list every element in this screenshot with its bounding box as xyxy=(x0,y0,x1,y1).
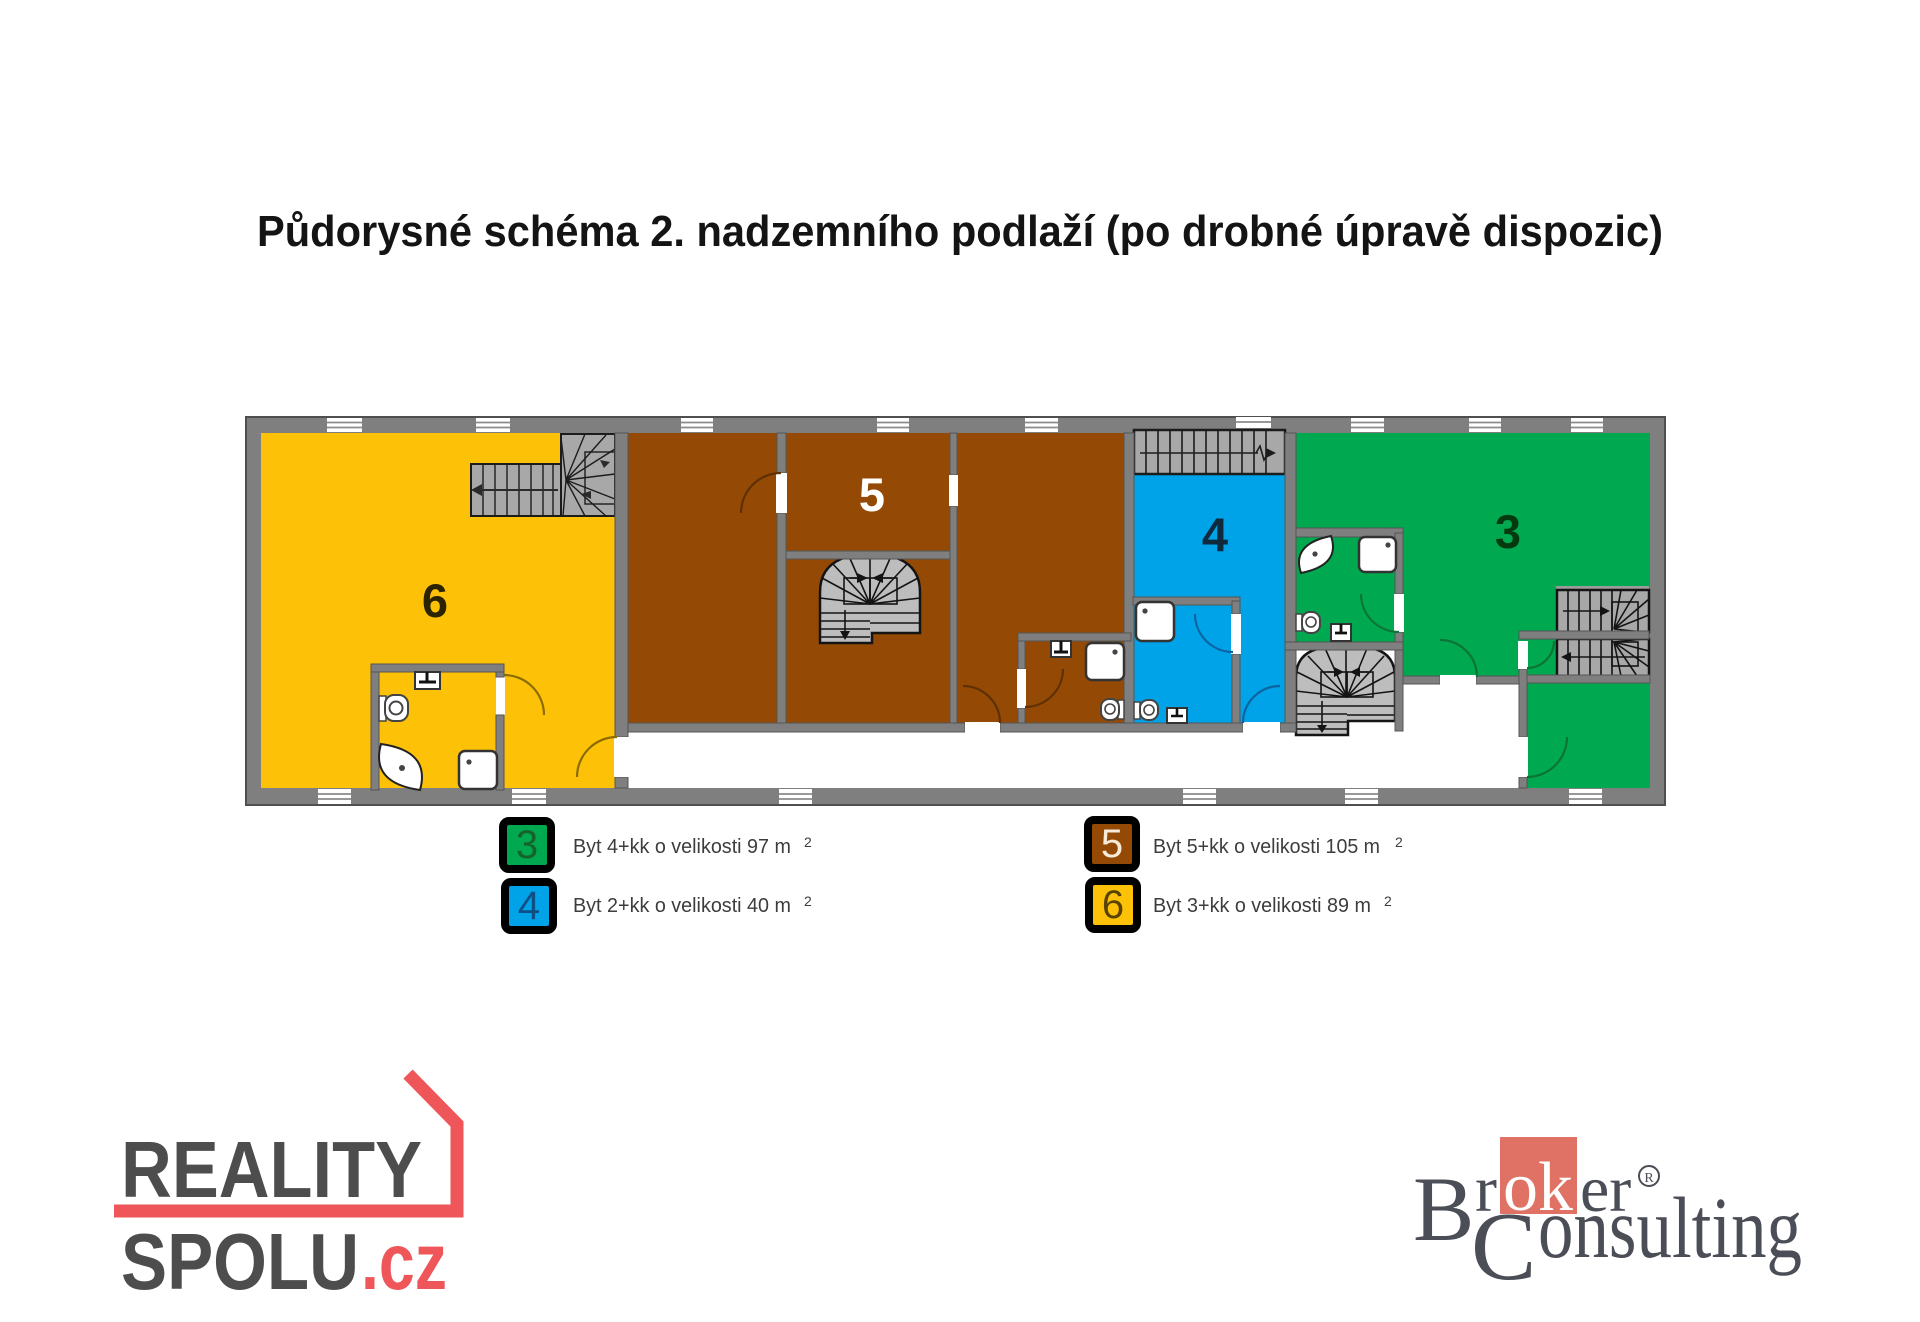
svg-text:2: 2 xyxy=(804,893,812,909)
svg-text:SPOLU: SPOLU xyxy=(121,1217,359,1306)
svg-text:B: B xyxy=(1413,1158,1474,1260)
svg-text:5: 5 xyxy=(859,468,885,521)
svg-text:Půdorysné schéma 2. nadzemního: Půdorysné schéma 2. nadzemního podlaží (… xyxy=(257,207,1663,256)
svg-text:4: 4 xyxy=(1202,508,1228,561)
svg-text:2: 2 xyxy=(1395,834,1403,850)
svg-text:Byt 3+kk o velikosti 89 m: Byt 3+kk o velikosti 89 m xyxy=(1153,895,1371,917)
svg-text:2: 2 xyxy=(1384,893,1392,909)
svg-text:Byt 2+kk o velikosti 40 m: Byt 2+kk o velikosti 40 m xyxy=(573,895,791,917)
svg-text:Byt 5+kk o velikosti 105 m: Byt 5+kk o velikosti 105 m xyxy=(1153,836,1380,858)
svg-text:3: 3 xyxy=(1495,505,1521,558)
svg-text:6: 6 xyxy=(422,574,448,627)
svg-text:.cz: .cz xyxy=(361,1217,447,1306)
svg-text:Byt 4+kk o velikosti 97 m: Byt 4+kk o velikosti 97 m xyxy=(573,836,791,858)
svg-text:onsulting: onsulting xyxy=(1538,1179,1802,1276)
svg-text:REALITY: REALITY xyxy=(121,1125,422,1214)
svg-text:2: 2 xyxy=(804,834,812,850)
svg-text:C: C xyxy=(1471,1193,1536,1301)
